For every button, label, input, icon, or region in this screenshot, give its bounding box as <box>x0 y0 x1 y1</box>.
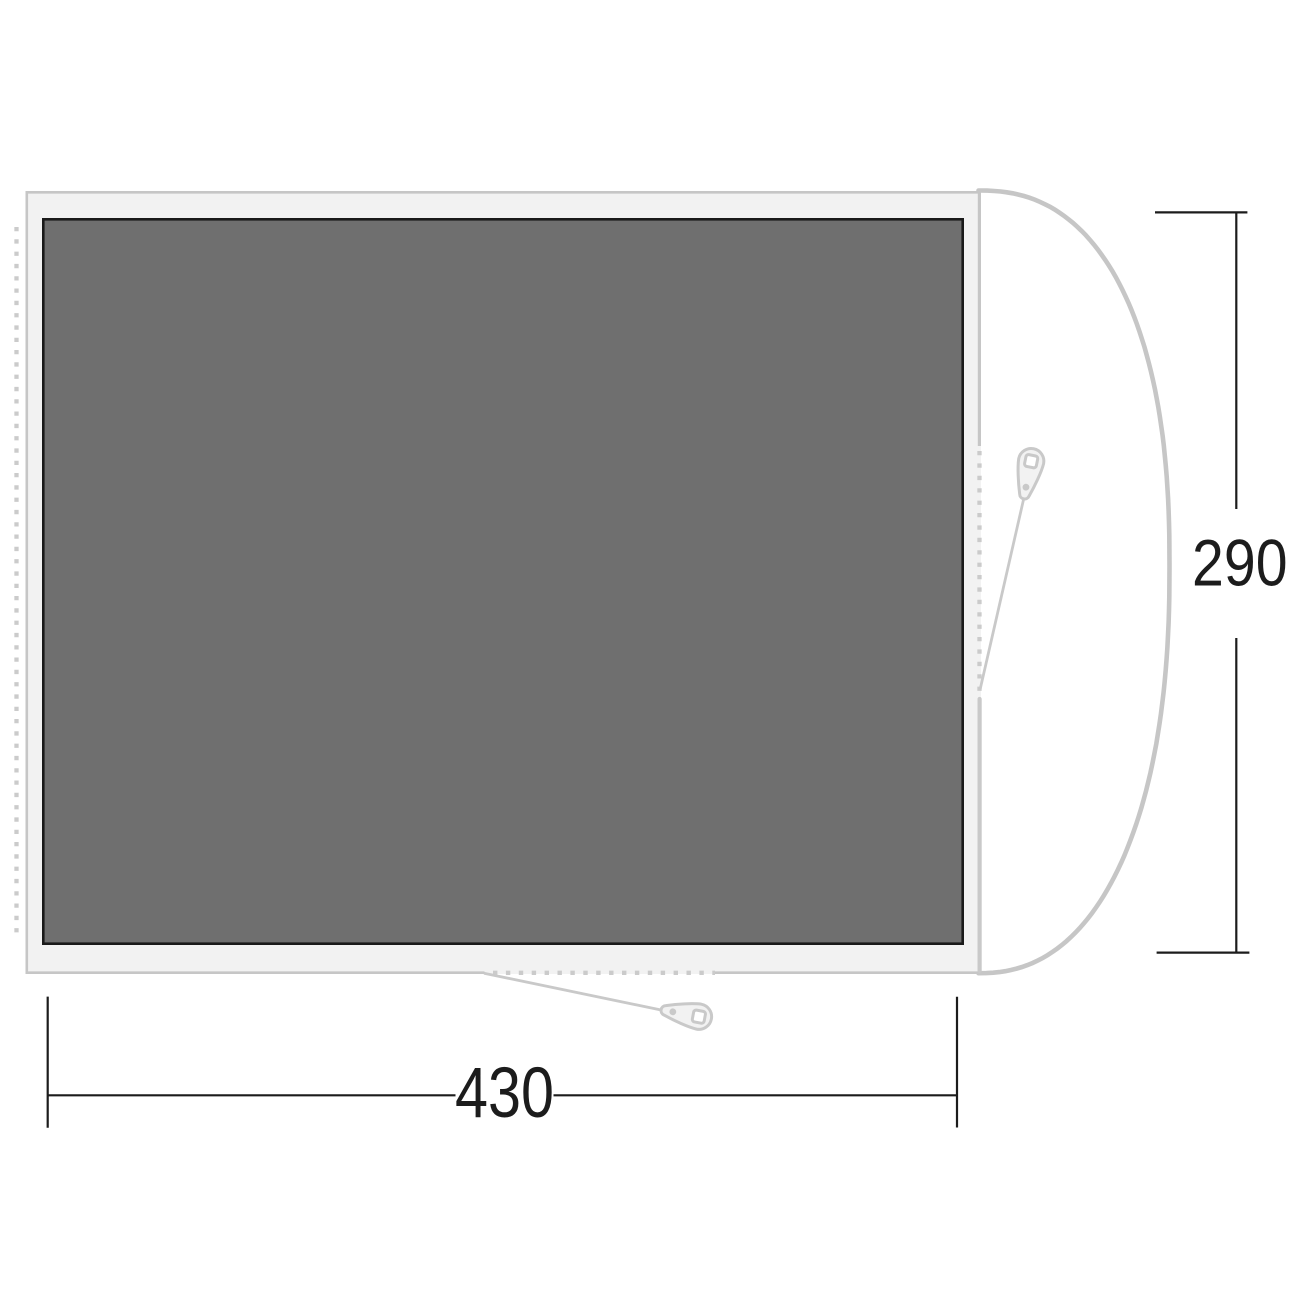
svg-text:430: 430 <box>455 1054 554 1133</box>
svg-text:290: 290 <box>1192 527 1288 600</box>
